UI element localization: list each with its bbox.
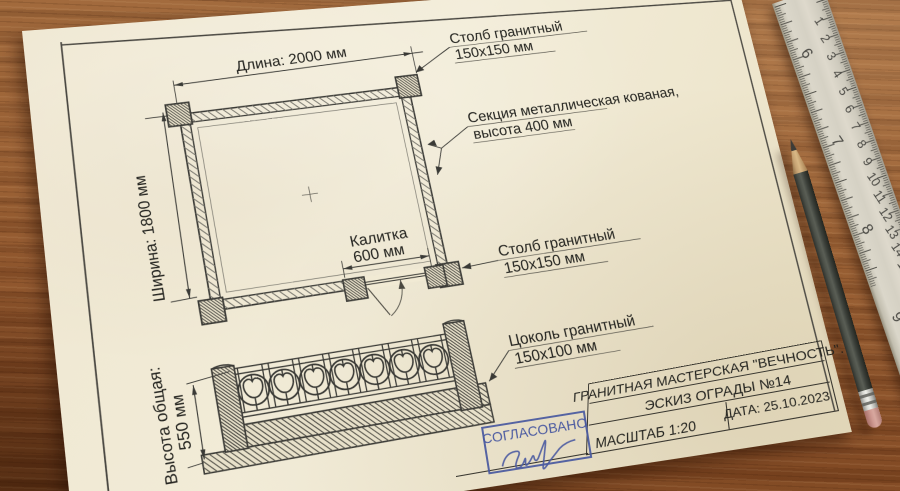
svg-text:1: 1: [811, 14, 827, 28]
svg-text:11: 11: [870, 188, 889, 207]
svg-text:2: 2: [817, 32, 833, 46]
svg-text:15: 15: [894, 258, 900, 277]
svg-text:Секция металлическая кованая,: Секция металлическая кованая,: [466, 84, 680, 126]
svg-text:3: 3: [823, 49, 839, 63]
svg-text:10: 10: [864, 170, 883, 189]
svg-text:4: 4: [830, 67, 846, 81]
svg-text:7: 7: [848, 120, 864, 134]
svg-text:Длина: 2000 мм: Длина: 2000 мм: [234, 45, 348, 75]
svg-text:13: 13: [882, 222, 900, 241]
svg-text:8: 8: [854, 137, 870, 151]
svg-text:7: 7: [827, 133, 846, 150]
svg-text:12: 12: [876, 205, 895, 224]
svg-text:6: 6: [842, 102, 858, 116]
svg-text:Ширина: 1800 мм: Ширина: 1800 мм: [131, 174, 169, 303]
svg-text:9: 9: [888, 309, 900, 326]
svg-text:5: 5: [836, 85, 852, 99]
svg-text:8: 8: [858, 221, 877, 238]
svg-text:9: 9: [860, 155, 876, 169]
svg-text:14: 14: [888, 240, 900, 259]
svg-text:6: 6: [797, 45, 816, 62]
